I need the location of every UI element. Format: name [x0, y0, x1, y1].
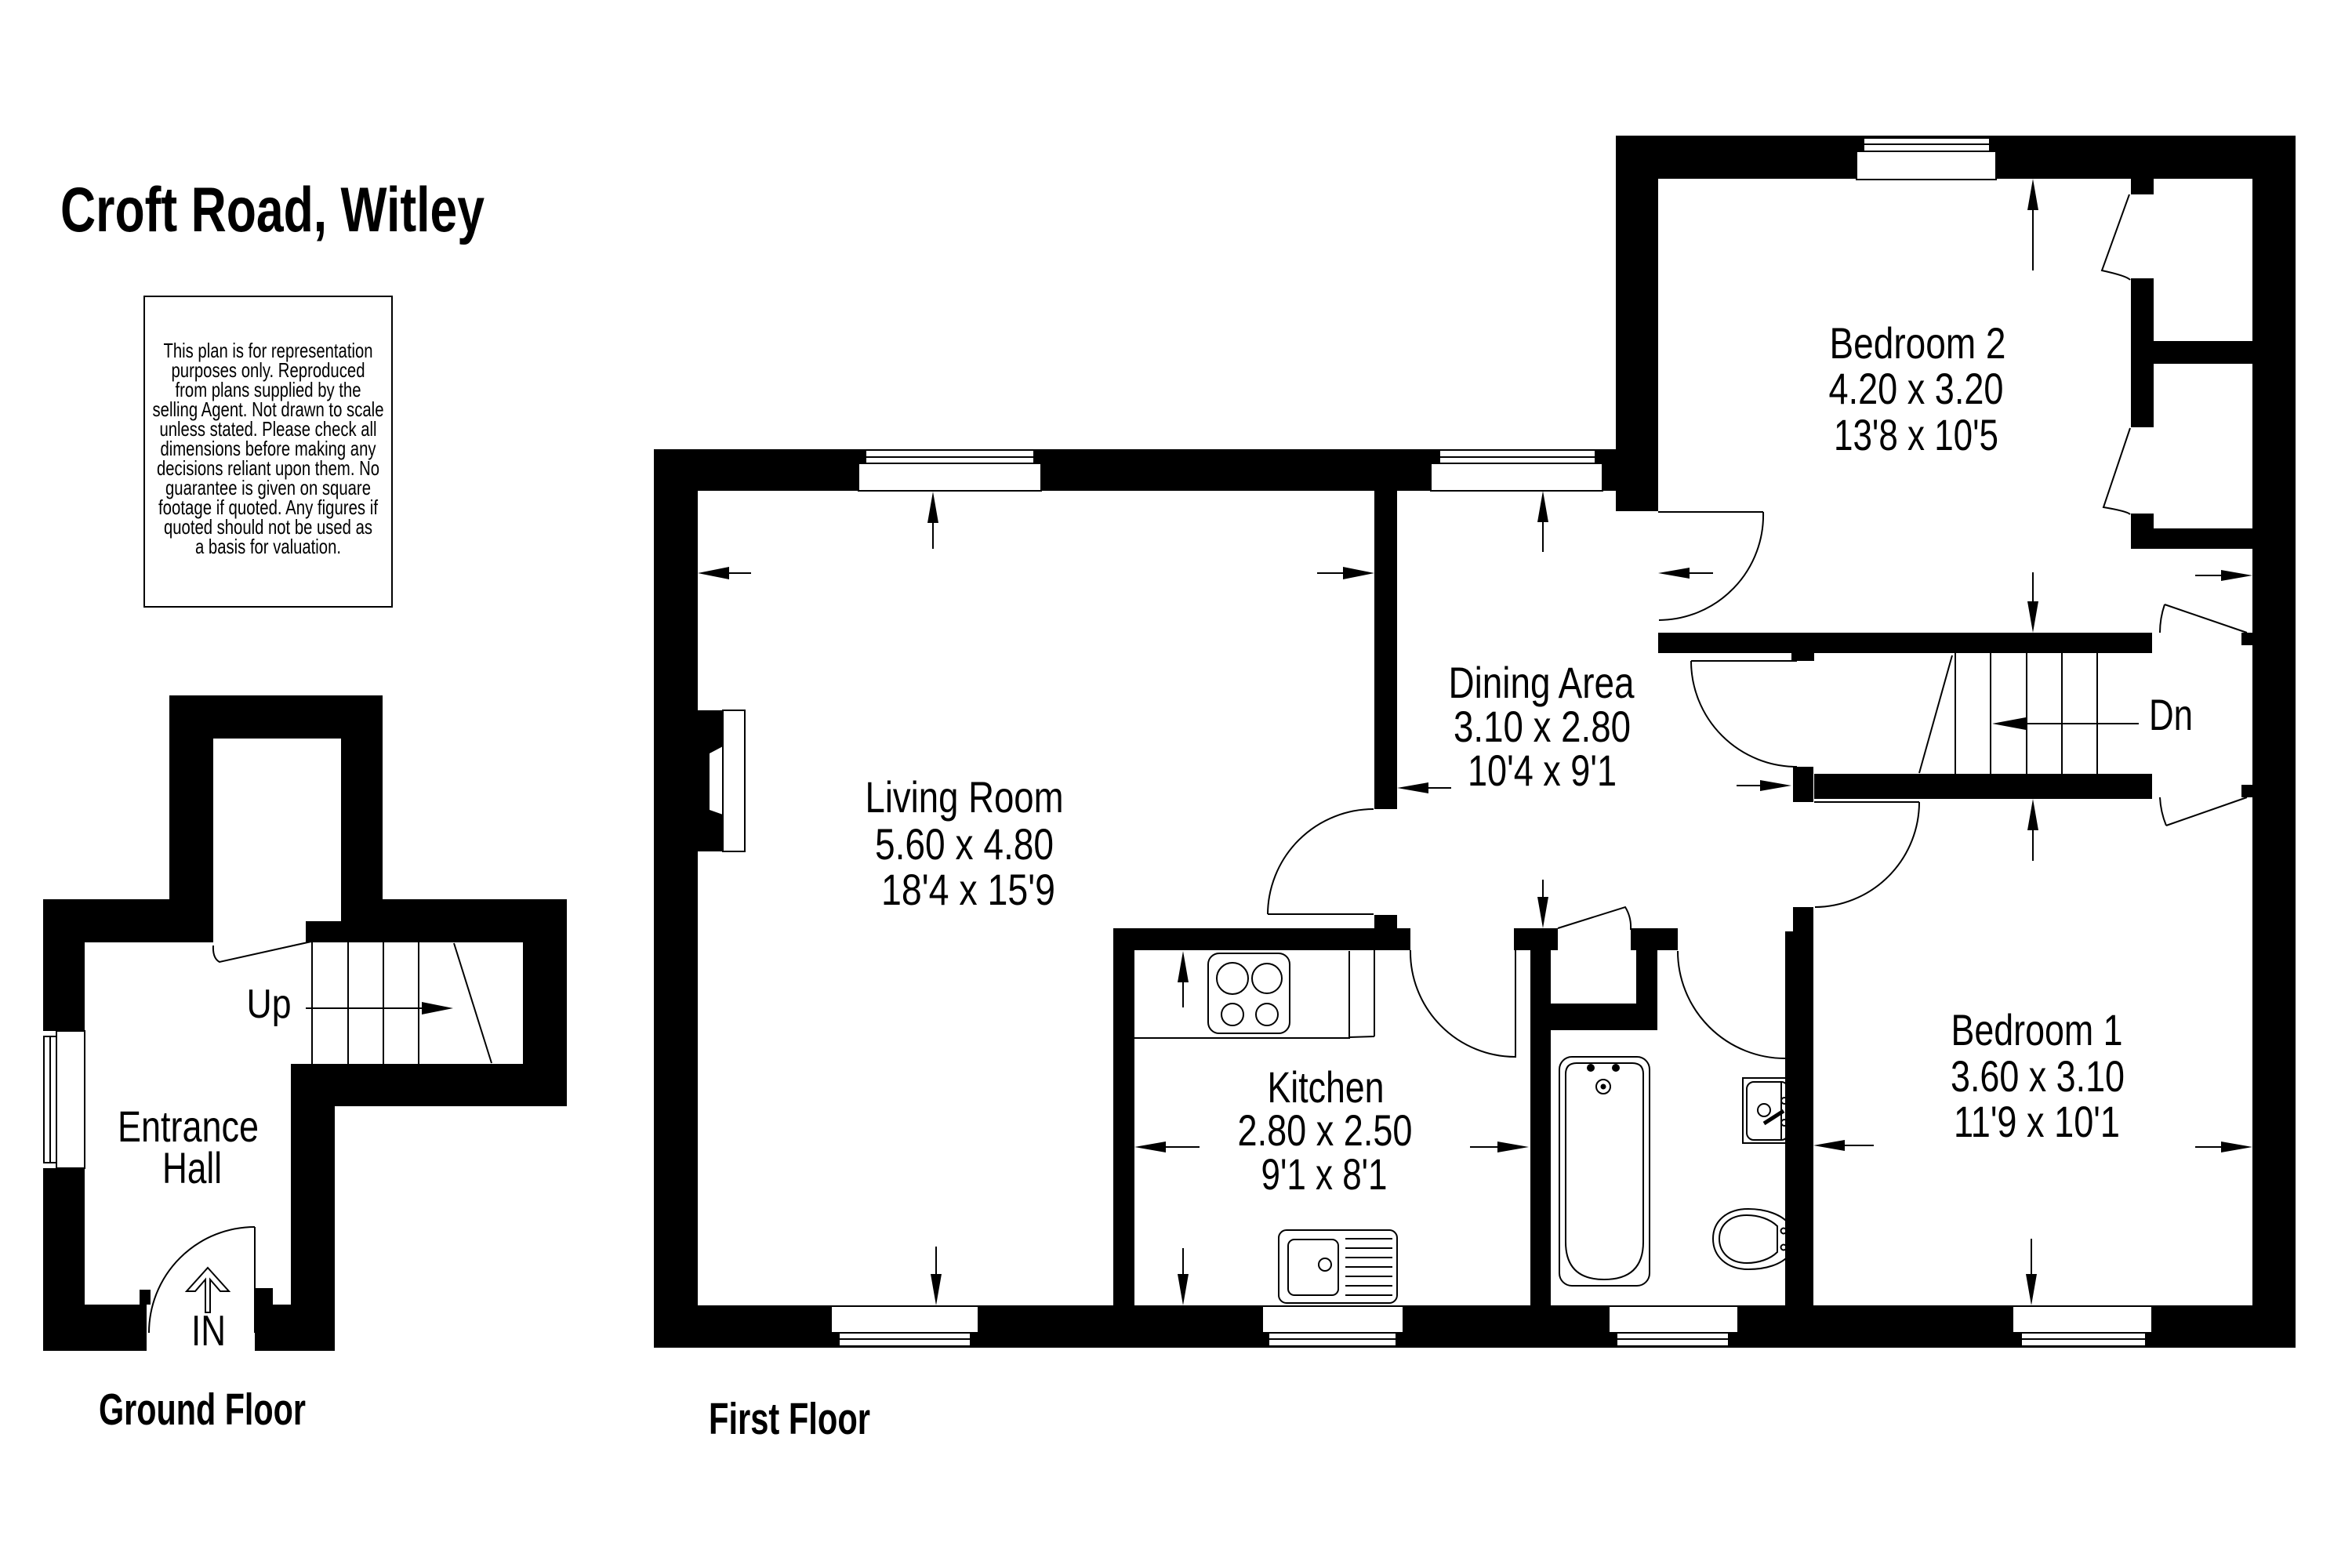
- svg-text:Up: Up: [247, 982, 292, 1027]
- svg-text:3.60 x 3.10: 3.60 x 3.10: [1951, 1051, 2125, 1101]
- svg-text:13'8 x 10'5: 13'8 x 10'5: [1834, 410, 1998, 459]
- svg-text:10'4 x 9'1: 10'4 x 9'1: [1468, 746, 1617, 795]
- svg-text:Kitchen: Kitchen: [1268, 1062, 1385, 1112]
- svg-text:Living Room: Living Room: [866, 772, 1064, 822]
- svg-text:First Floor: First Floor: [709, 1394, 870, 1444]
- svg-text:Dining Area: Dining Area: [1449, 658, 1635, 707]
- svg-text:Croft Road, Witley: Croft Road, Witley: [60, 175, 485, 245]
- svg-text:Bedroom 1: Bedroom 1: [1951, 1005, 2123, 1054]
- svg-text:4.20 x 3.20: 4.20 x 3.20: [1829, 364, 2004, 413]
- svg-text:5.60 x 4.80: 5.60 x 4.80: [875, 819, 1054, 869]
- svg-text:9'1 x 8'1: 9'1 x 8'1: [1261, 1149, 1388, 1199]
- svg-text:a basis for valuation.: a basis for valuation.: [195, 535, 341, 558]
- svg-text:Hall: Hall: [162, 1143, 222, 1192]
- svg-text:18'4 x 15'9: 18'4 x 15'9: [881, 865, 1055, 914]
- svg-text:IN: IN: [191, 1306, 226, 1355]
- svg-text:Bedroom 2: Bedroom 2: [1830, 318, 2006, 368]
- svg-text:11'9 x 10'1: 11'9 x 10'1: [1954, 1097, 2120, 1146]
- svg-text:3.10 x 2.80: 3.10 x 2.80: [1454, 702, 1631, 751]
- svg-text:Dn: Dn: [2149, 690, 2193, 739]
- svg-text:Ground Floor: Ground Floor: [99, 1385, 306, 1435]
- svg-text:2.80 x 2.50: 2.80 x 2.50: [1238, 1105, 1413, 1155]
